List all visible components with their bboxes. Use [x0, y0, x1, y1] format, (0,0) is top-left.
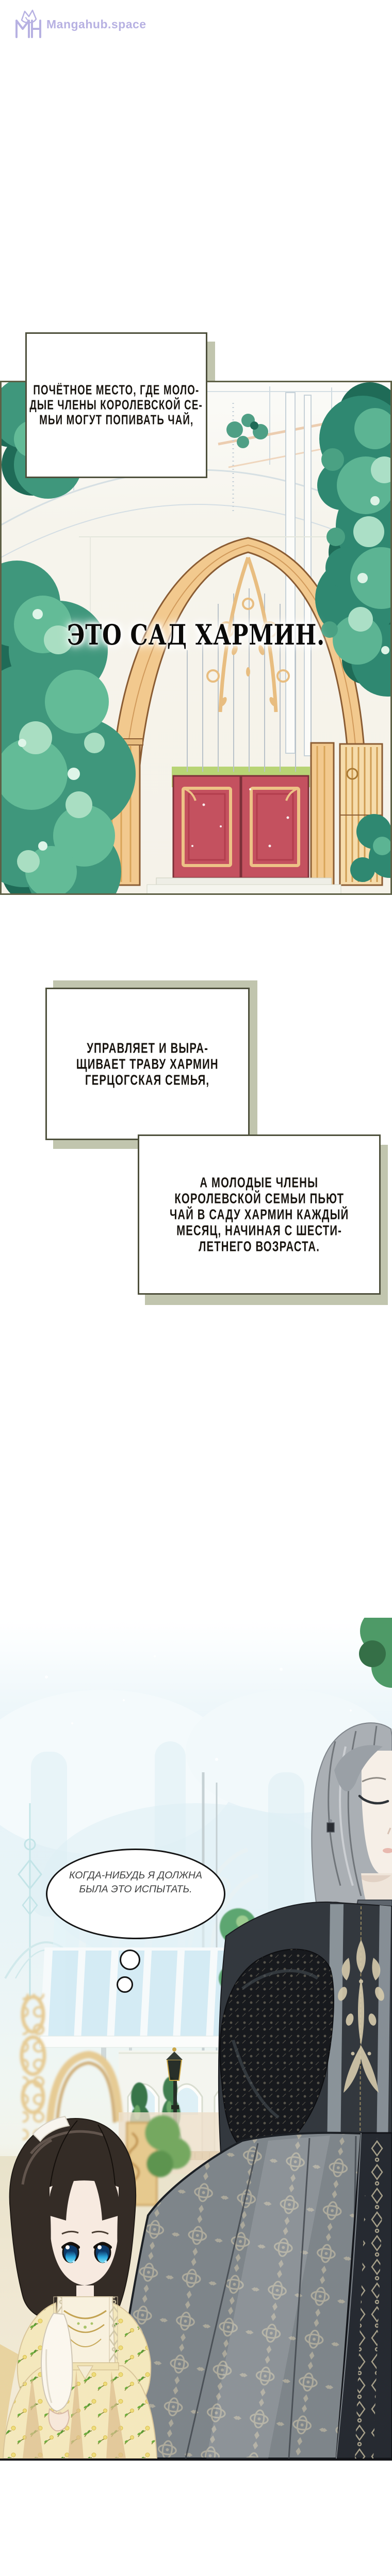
site-logo[interactable]: Mangahub.space [14, 9, 159, 39]
narration-box1: ПОЧЁТНОЕ МЕСТО, ГДЕ МОЛО- ДЫЕ ЧЛЕНЫ КОРО… [25, 332, 207, 478]
thought-trail-circle [120, 1950, 140, 1970]
greenhouse-scene: КОГДА-НИБУДЬ Я ДОЛЖНА БЫЛА ЭТО ИСПЫТАТЬ. [0, 1618, 392, 2461]
narration-box2: УПРАВЛЯЕТ И ВЫРА- ЩИВАЕТ ТРАВУ ХАРМИН ГЕ… [45, 988, 250, 1140]
webtoon-page: Mangahub.space ПОЧЁТНОЕ МЕСТО, ГДЕ МОЛО-… [0, 0, 392, 2576]
gate-leaves [219, 645, 278, 707]
narration-box3: А МОЛОДЫЕ ЧЛЕНЫ КОРОЛЕВСКОЙ СЕМЬИ ПЬЮТ Ч… [138, 1134, 381, 1295]
thought-bubble: КОГДА-НИБУДЬ Я ДОЛЖНА БЫЛА ЭТО ИСПЫТАТЬ. [46, 1849, 225, 1939]
narration-line: А МОЛОДЫЕ ЧЛЕНЫ [200, 1174, 319, 1191]
gate-step [147, 885, 341, 895]
woman-earring [327, 1823, 334, 1832]
narration-line: ГЕРЦОГСКАЯ СЕМЬЯ, [85, 1071, 209, 1088]
gate-red-doors [173, 776, 308, 878]
gate-step [156, 878, 332, 885]
narration-line: ПОЧЁТНОЕ МЕСТО, ГДЕ МОЛО- [34, 382, 200, 398]
thought-trail-circle [117, 1976, 133, 1993]
narration-line: КОРОЛЕВСКОЙ СЕМЬИ ПЬЮТ [174, 1190, 344, 1207]
narration-line: ДЫЕ ЧЛЕНЫ КОРОЛЕВСКОЙ СЕ- [30, 397, 203, 413]
logo-fox-mh-icon [14, 9, 42, 39]
scene-art [0, 1618, 392, 2461]
narration-line: ЧАЙ В САДУ ХАРМИН КАЖДЫЙ [170, 1206, 349, 1223]
thought-line: КОГДА-НИБУДЬ Я ДОЛЖНА [69, 1869, 202, 1883]
narration-line: ЩИВАЕТ ТРАВУ ХАРМИН [76, 1055, 219, 1072]
site-name: Mangahub.space [46, 18, 146, 31]
narration-line: МЬИ МОГУТ ПОПИВАТЬ ЧАЙ, [39, 412, 193, 428]
panel-title: ЭТО САД ХАРМИН. [40, 618, 351, 651]
narration-line: ЛЕТНЕГО ВОЗРАСТА. [199, 1238, 320, 1255]
narration-line: УПРАВЛЯЕТ И ВЫРА- [87, 1039, 208, 1056]
thought-line: БЫЛА ЭТО ИСПЫТАТЬ. [79, 1883, 192, 1896]
narration-line: МЕСЯЦ, НАЧИНАЯ С ШЕСТИ- [176, 1222, 342, 1239]
